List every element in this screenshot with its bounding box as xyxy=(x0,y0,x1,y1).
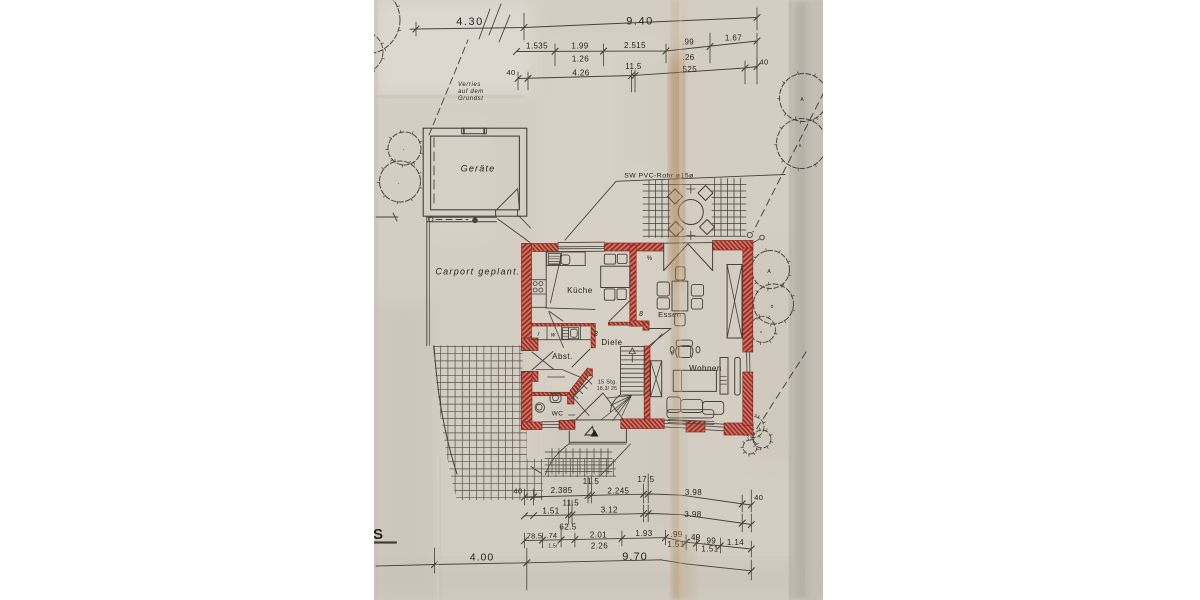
svg-text:WC: WC xyxy=(552,411,564,418)
svg-text:ʌ: ʌ xyxy=(755,412,757,417)
svg-text:1.93: 1.93 xyxy=(635,529,652,538)
svg-text:8: 8 xyxy=(594,331,598,338)
svg-text:1.99: 1.99 xyxy=(571,42,588,51)
svg-text:9.70: 9.70 xyxy=(622,551,647,563)
svg-text:o: o xyxy=(771,304,774,310)
svg-text:8: 8 xyxy=(639,311,643,318)
svg-text:3.12: 3.12 xyxy=(601,506,618,515)
svg-text:Diele: Diele xyxy=(601,338,622,347)
svg-text:15 Stg.: 15 Stg. xyxy=(598,380,618,386)
svg-text:·: · xyxy=(403,147,406,153)
svg-text:3.98: 3.98 xyxy=(685,488,702,497)
svg-text:Abst.: Abst. xyxy=(552,352,573,361)
svg-text:Geräte: Geräte xyxy=(461,164,496,174)
svg-text:.26: .26 xyxy=(682,53,694,62)
svg-text:1.5/: 1.5/ xyxy=(548,544,558,550)
svg-text:1.535: 1.535 xyxy=(526,42,548,51)
svg-text:Verries: Verries xyxy=(458,82,481,88)
svg-text:11.5: 11.5 xyxy=(625,62,642,71)
svg-text:62.5: 62.5 xyxy=(559,523,576,532)
svg-text:40: 40 xyxy=(514,487,523,496)
svg-text:17.5: 17.5 xyxy=(637,475,654,484)
svg-text:2.01: 2.01 xyxy=(590,530,607,539)
svg-text:Wohnen: Wohnen xyxy=(689,364,722,373)
svg-text:4.30: 4.30 xyxy=(456,16,483,28)
svg-text:1.67: 1.67 xyxy=(725,34,742,43)
svg-text:2.26: 2.26 xyxy=(591,542,608,551)
svg-text:40: 40 xyxy=(754,493,763,502)
svg-text:.74: .74 xyxy=(546,531,557,540)
svg-text:4.26: 4.26 xyxy=(572,69,589,78)
svg-text:%: % xyxy=(647,256,653,262)
svg-text:18.3/ 25: 18.3/ 25 xyxy=(597,386,617,392)
svg-text:40: 40 xyxy=(507,68,516,77)
svg-text:2.385: 2.385 xyxy=(551,486,573,495)
svg-text:.99: .99 xyxy=(682,38,694,47)
svg-text:1.14: 1.14 xyxy=(727,538,744,547)
svg-text:4.00: 4.00 xyxy=(470,552,494,564)
svg-text:1.51: 1.51 xyxy=(701,545,718,554)
svg-text:40: 40 xyxy=(760,58,769,67)
svg-text:·: · xyxy=(398,181,401,187)
svg-text:1.51: 1.51 xyxy=(542,507,559,516)
svg-text:11.5: 11.5 xyxy=(563,499,580,508)
svg-text:2.515: 2.515 xyxy=(624,41,646,50)
svg-text:auf dem: auf dem xyxy=(458,89,484,95)
svg-text:Grundst: Grundst xyxy=(458,96,484,102)
svg-text:ʌ: ʌ xyxy=(760,329,762,334)
svg-text:Carport geplant.: Carport geplant. xyxy=(435,267,520,277)
svg-text:1.26: 1.26 xyxy=(572,55,589,64)
svg-text:Küche: Küche xyxy=(567,286,593,295)
svg-text:2.245: 2.245 xyxy=(607,487,629,496)
svg-text:11.5: 11.5 xyxy=(583,477,600,486)
svg-text:3.98: 3.98 xyxy=(684,510,701,519)
svg-text:9.40: 9.40 xyxy=(626,16,653,28)
svg-text:S: S xyxy=(373,526,383,543)
svg-text:78.5: 78.5 xyxy=(527,532,542,541)
svg-text:w: w xyxy=(551,332,556,338)
